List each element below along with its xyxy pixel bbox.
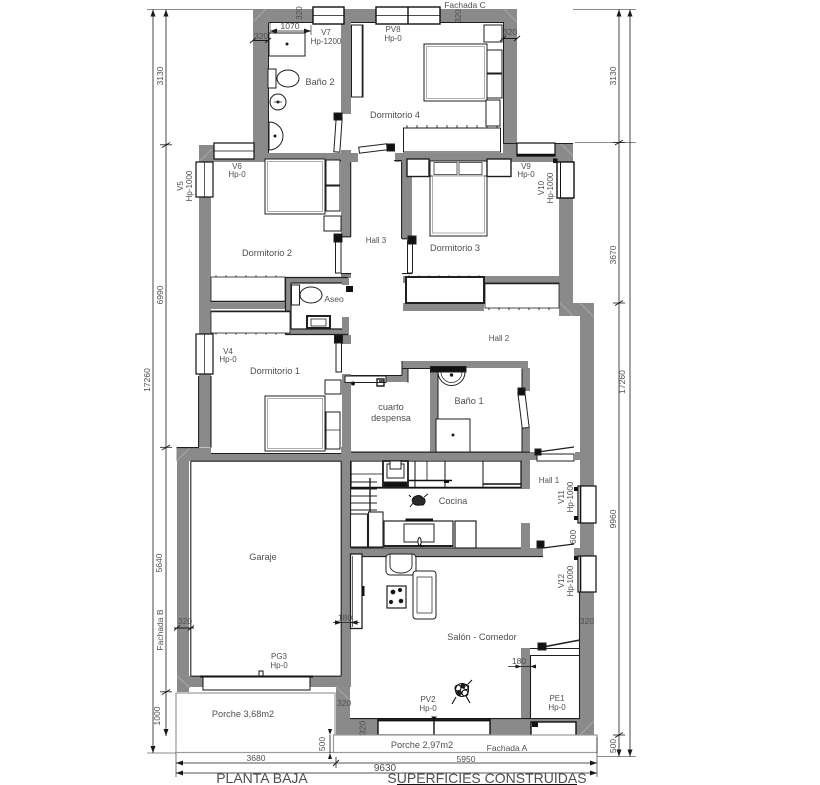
svg-text:Porche 3,68m2: Porche 3,68m2: [212, 709, 274, 719]
svg-text:320: 320: [454, 9, 463, 23]
svg-text:Hp-1000: Hp-1000: [566, 565, 575, 596]
svg-text:320: 320: [580, 616, 594, 626]
svg-text:1000: 1000: [152, 706, 162, 725]
svg-text:V10: V10: [537, 180, 546, 195]
svg-text:180: 180: [512, 656, 526, 666]
svg-text:17260: 17260: [617, 370, 627, 394]
svg-text:500: 500: [317, 737, 327, 751]
svg-text:V12: V12: [557, 573, 566, 588]
svg-text:3670: 3670: [608, 245, 618, 264]
svg-text:Hp-1000: Hp-1000: [185, 170, 194, 201]
svg-text:5640: 5640: [154, 553, 164, 572]
svg-text:Hp-1000: Hp-1000: [566, 481, 575, 512]
svg-text:600: 600: [568, 530, 578, 544]
svg-text:Hp-0: Hp-0: [219, 355, 237, 364]
svg-text:Hall 1: Hall 1: [539, 476, 560, 485]
svg-text:320: 320: [358, 721, 368, 735]
svg-text:cuarto: cuarto: [378, 402, 404, 412]
svg-text:180: 180: [338, 613, 352, 623]
svg-text:PV8: PV8: [385, 25, 401, 34]
svg-text:Hp-1200: Hp-1200: [311, 37, 342, 46]
svg-text:Dormitorio 1: Dormitorio 1: [250, 366, 300, 376]
svg-text:Baño 2: Baño 2: [305, 77, 334, 87]
svg-text:Hp-0: Hp-0: [548, 703, 566, 712]
svg-text:Dormitorio 2: Dormitorio 2: [242, 248, 292, 258]
svg-text:5950: 5950: [457, 754, 476, 764]
svg-text:6990: 6990: [155, 285, 165, 304]
svg-text:320: 320: [337, 698, 351, 708]
svg-text:320: 320: [295, 6, 304, 20]
svg-text:320: 320: [254, 31, 268, 41]
svg-text:3130: 3130: [608, 66, 618, 85]
svg-text:Fachada A: Fachada A: [487, 743, 528, 753]
svg-text:Hall 2: Hall 2: [489, 334, 510, 343]
svg-text:SUPERFICIES CONSTRUIDAS: SUPERFICIES CONSTRUIDAS: [387, 770, 586, 785]
svg-text:Baño 1: Baño 1: [454, 396, 483, 406]
svg-text:Salón - Comedor: Salón - Comedor: [447, 632, 516, 642]
svg-text:Hp-0: Hp-0: [384, 34, 402, 43]
svg-text:Garaje: Garaje: [249, 552, 277, 562]
svg-text:Hp-0: Hp-0: [419, 704, 437, 713]
svg-text:1070: 1070: [281, 21, 300, 31]
svg-text:17260: 17260: [142, 368, 152, 392]
svg-text:V11: V11: [557, 490, 566, 504]
svg-text:3680: 3680: [247, 753, 266, 763]
svg-text:PE1: PE1: [549, 694, 565, 703]
svg-text:Dormitorio 4: Dormitorio 4: [370, 110, 420, 120]
svg-text:V7: V7: [321, 28, 331, 37]
svg-text:3130: 3130: [155, 66, 165, 85]
svg-text:Fachada C: Fachada C: [444, 0, 486, 10]
svg-text:PV2: PV2: [420, 695, 436, 704]
svg-text:Hp-1000: Hp-1000: [546, 172, 555, 203]
svg-text:Fachada B: Fachada B: [155, 609, 165, 650]
svg-text:9960: 9960: [608, 509, 618, 528]
svg-text:Cocina: Cocina: [439, 496, 468, 506]
svg-text:Dormitorio 3: Dormitorio 3: [430, 243, 480, 253]
svg-text:Hp-0: Hp-0: [228, 170, 246, 179]
svg-text:500: 500: [608, 739, 618, 753]
svg-text:despensa: despensa: [371, 413, 412, 423]
svg-text:Hp-0: Hp-0: [517, 170, 535, 179]
svg-text:PLANTA BAJA: PLANTA BAJA: [216, 770, 308, 785]
svg-text:PG3: PG3: [271, 652, 288, 661]
svg-text:V5: V5: [176, 181, 185, 191]
svg-text:320: 320: [178, 616, 192, 626]
svg-text:320: 320: [503, 27, 517, 37]
svg-text:Hp-0: Hp-0: [270, 661, 288, 670]
svg-text:Porche 2,97m2: Porche 2,97m2: [391, 740, 453, 750]
svg-text:Hall 3: Hall 3: [366, 236, 387, 245]
svg-text:Aseo: Aseo: [324, 294, 344, 304]
